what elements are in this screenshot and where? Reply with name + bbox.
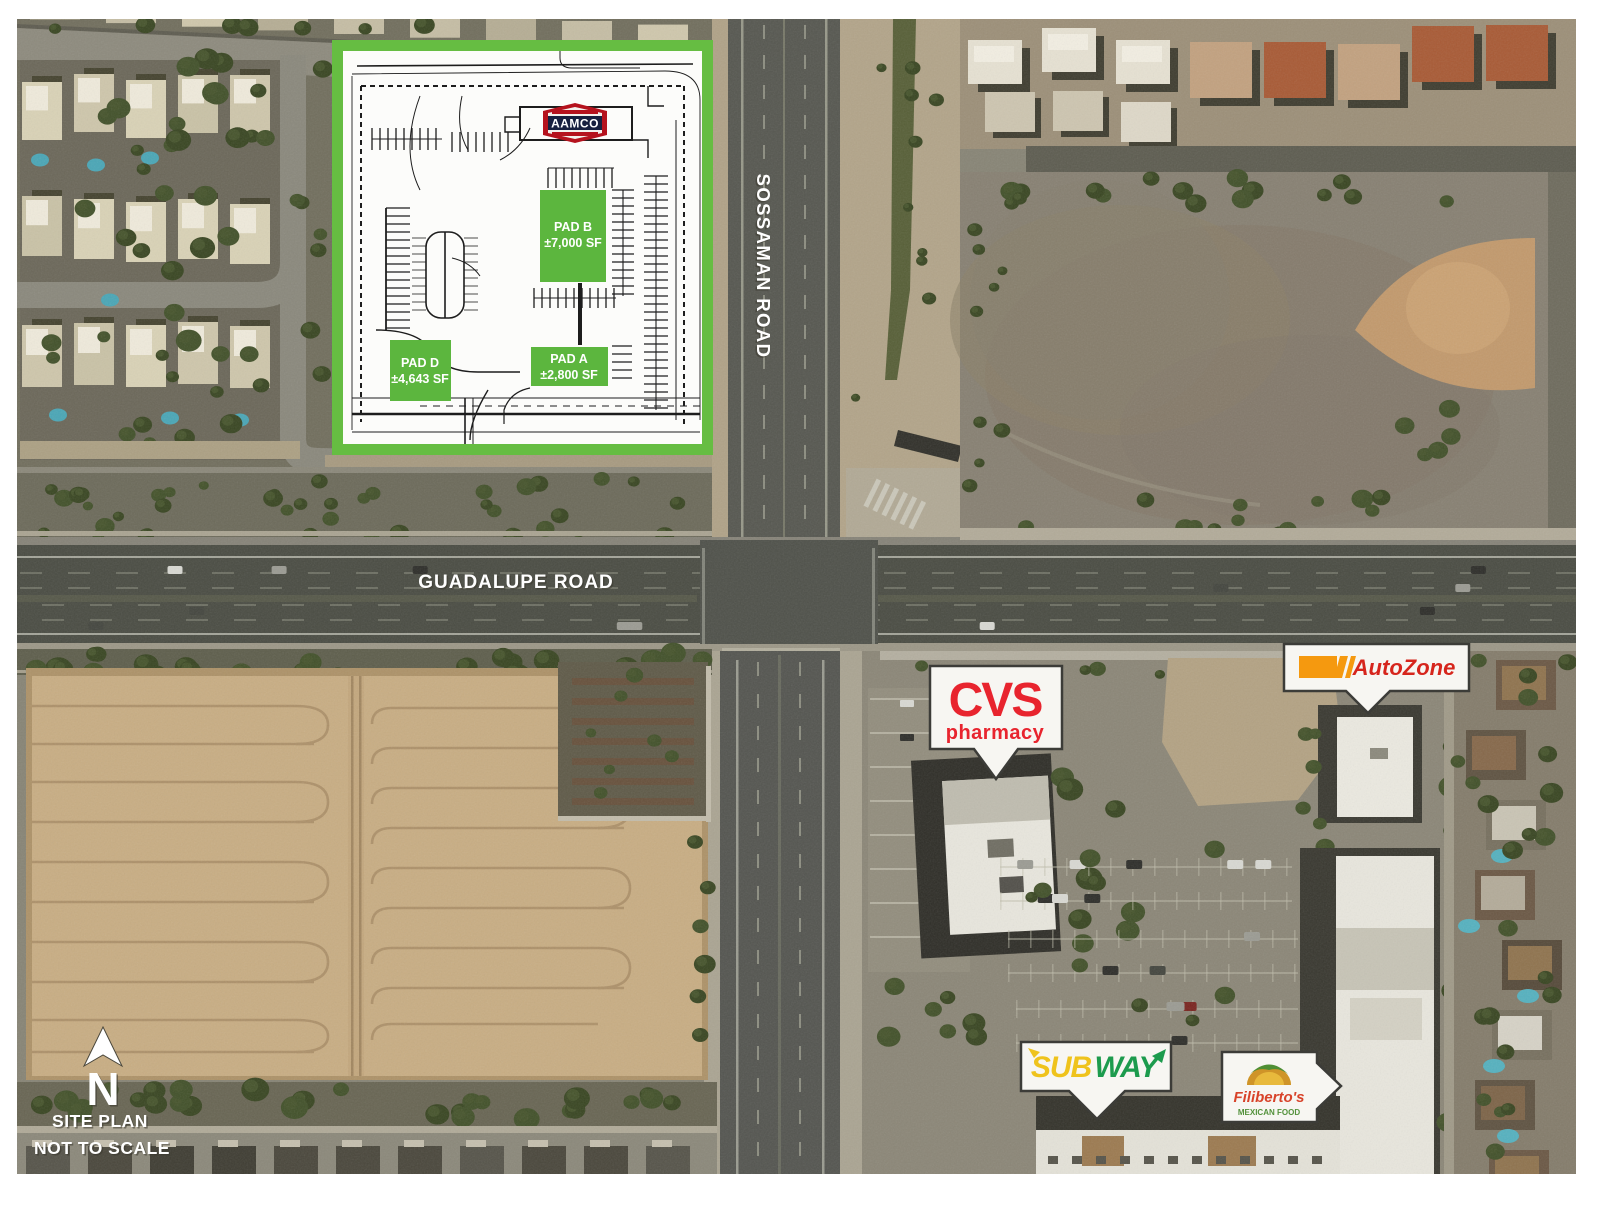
svg-text:SUB: SUB	[1031, 1051, 1092, 1084]
svg-text:SOSSAMAN ROAD: SOSSAMAN ROAD	[753, 174, 774, 359]
svg-text:Filiberto's: Filiberto's	[1233, 1089, 1304, 1106]
svg-text:AAMCO: AAMCO	[551, 117, 599, 131]
svg-text:PAD A: PAD A	[550, 352, 588, 366]
svg-text:WAY: WAY	[1094, 1051, 1161, 1084]
svg-text:pharmacy: pharmacy	[946, 722, 1045, 744]
svg-text:GUADALUPE ROAD: GUADALUPE ROAD	[418, 572, 614, 593]
svg-text:±4,643 SF: ±4,643 SF	[391, 372, 449, 386]
svg-text:SITE PLAN: SITE PLAN	[52, 1111, 148, 1131]
svg-text:NOT TO SCALE: NOT TO SCALE	[34, 1138, 170, 1158]
svg-text:PAD B: PAD B	[554, 220, 592, 234]
svg-text:CVS: CVS	[949, 674, 1043, 727]
svg-text:MEXICAN FOOD: MEXICAN FOOD	[1238, 1108, 1300, 1117]
svg-text:±2,800 SF: ±2,800 SF	[540, 368, 598, 382]
svg-text:PAD D: PAD D	[401, 356, 439, 370]
svg-text:±7,000 SF: ±7,000 SF	[544, 236, 602, 250]
svg-text:AutoZone: AutoZone	[1352, 655, 1456, 680]
svg-text:N: N	[86, 1063, 119, 1115]
